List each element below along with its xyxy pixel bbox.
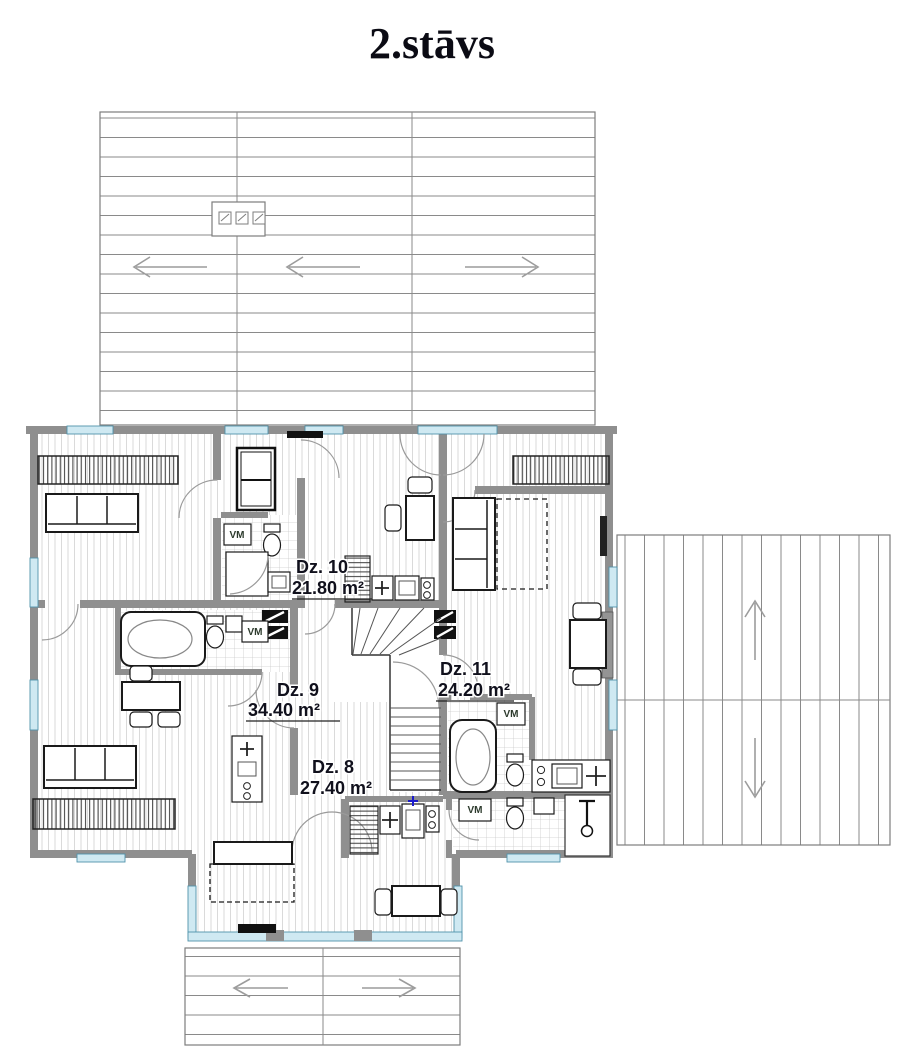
floor-plan-page: 2.stāvs [0,0,921,1058]
room-area-dz11: 24.20 m² [438,680,510,700]
right-roof [617,535,890,845]
tv-dz11 [600,516,607,556]
vm-label-dz11: VM [504,709,519,720]
room-name-dz9: Dz. 9 [277,680,319,700]
vm-label-dz9: VM [248,627,263,638]
page-title: 2.stāvs [369,19,495,68]
room-area-dz8: 27.40 m² [300,778,372,798]
entry-cabinet-dz10 [237,448,275,510]
kitchen-dz11 [532,760,610,792]
room-area-dz9: 34.40 m² [248,700,320,720]
kitchen-dz9 [232,736,262,802]
vm-label-dz10: VM [230,530,245,541]
dining-dz11 [570,603,606,685]
winter-garden-glass-front [188,932,462,941]
building: VM [26,426,617,941]
wall-vent [287,431,323,438]
top-roof [100,112,595,425]
room-name-dz11: Dz. 11 [440,659,491,679]
floor-plan-canvas: 2.stāvs [0,0,921,1058]
chimney [212,202,265,236]
vm-label-dz8: VM [468,805,483,816]
bedroom-nw [46,494,138,532]
winter-garden-glass-left [188,886,196,938]
sofa-dz9 [44,746,136,788]
room-name-dz10: Dz. 10 [296,557,348,577]
room-area-dz10: 21.80 m² [292,578,364,598]
bench [238,924,276,933]
bottom-roof [185,948,460,1045]
room-name-dz8: Dz. 8 [312,757,354,777]
